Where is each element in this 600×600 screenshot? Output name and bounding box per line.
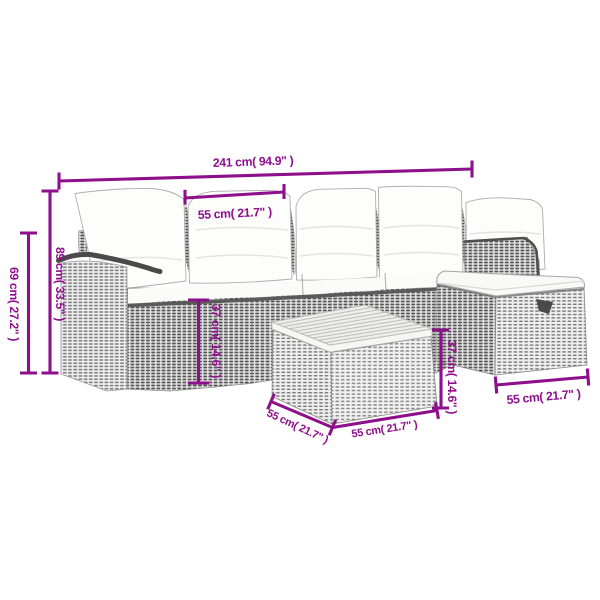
svg-text:241 cm( 94.9" ): 241 cm( 94.9" ) [213,153,294,170]
svg-text:89 cm( 33.5" ): 89 cm( 33.5" ) [53,247,67,321]
svg-text:37 cm( 14.6" ): 37 cm( 14.6" ) [445,340,459,414]
svg-text:69 cm( 27.2" ): 69 cm( 27.2" ) [7,267,21,341]
svg-text:37 cm( 14.6" ): 37 cm( 14.6" ) [209,304,223,378]
